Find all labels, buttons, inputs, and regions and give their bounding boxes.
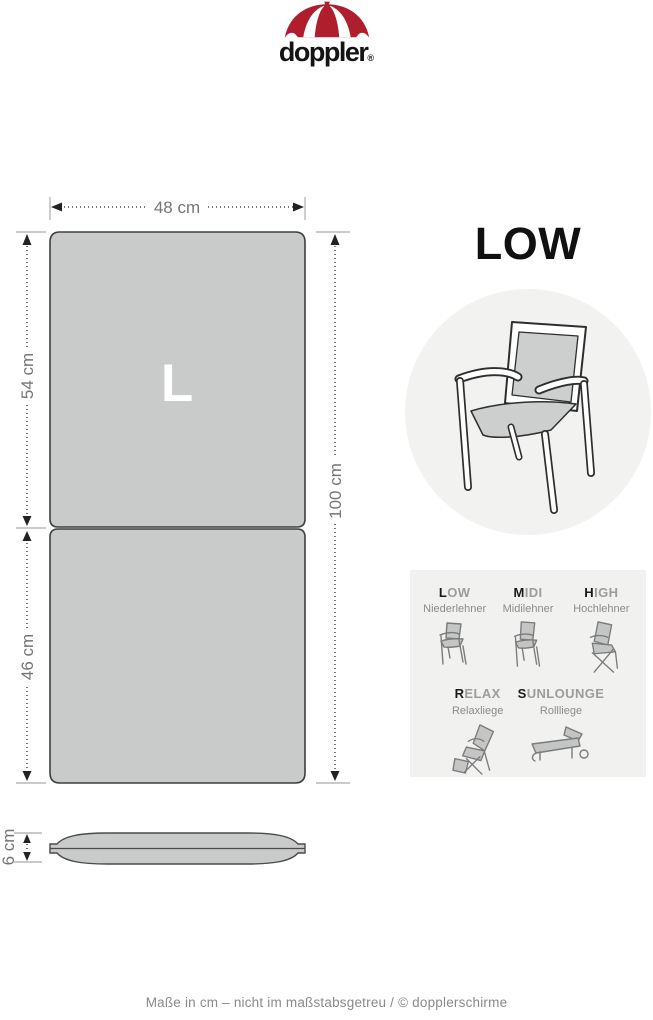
- legend-label-high: HIGH: [565, 586, 638, 600]
- legend-sublabel-sunlounge: Rollliege: [518, 705, 605, 717]
- brand-wordmark: doppler®: [279, 39, 374, 66]
- cushion-front-view: L: [50, 232, 305, 783]
- chair-high-mini-icon: [578, 620, 624, 674]
- chair-relax-mini-icon: [452, 722, 504, 776]
- doppler-logo: doppler®: [0, 0, 653, 66]
- umbrella-icon: [283, 0, 371, 42]
- legend-item-high: HIGH Hochlehner: [565, 586, 638, 679]
- legend-item-low: LOW Niederlehner: [418, 586, 491, 679]
- width-dimension-label: 48 cm: [154, 198, 200, 217]
- product-type-title: LOW: [405, 221, 651, 266]
- legend-item-midi: MIDI Midilehner: [491, 586, 564, 679]
- product-dimension-sheet: doppler®: [0, 0, 653, 1020]
- legend-sublabel-relax: Relaxliege: [452, 705, 504, 717]
- sunlounge-mini-icon: [528, 722, 594, 764]
- legend-label-relax: RELAX: [452, 687, 504, 701]
- legend-sublabel-low: Niederlehner: [418, 603, 491, 615]
- upper-height-dimension-label: 54 cm: [18, 353, 37, 399]
- legend-item-relax: RELAX Relaxliege: [452, 687, 504, 780]
- legend-sublabel-high: Hochlehner: [565, 603, 638, 615]
- size-letter: L: [161, 354, 193, 413]
- legend-label-low: LOW: [418, 586, 491, 600]
- legend-sublabel-midi: Midilehner: [491, 603, 564, 615]
- low-chair-icon: [405, 289, 651, 535]
- legend-row-1: LOW Niederlehner MIDI Midilehn: [410, 570, 646, 679]
- legend-row-2: RELAX Relaxliege SUNLOUNGE Rol: [410, 687, 646, 780]
- chair-type-circle: [405, 289, 651, 535]
- brand-name: doppler: [279, 37, 368, 67]
- legend-label-midi: MIDI: [491, 586, 564, 600]
- cushion-side-view: [50, 833, 305, 864]
- lower-height-dimension-label: 46 cm: [18, 634, 37, 680]
- cushion-lower-section: [50, 529, 305, 783]
- footer-note: Maße in cm – nicht im maßstabsgetreu / ©…: [0, 995, 653, 1010]
- registered-mark: ®: [367, 53, 374, 63]
- legend-item-sunlounge: SUNLOUNGE Rollliege: [518, 687, 605, 780]
- chair-low-mini-icon: [435, 620, 475, 668]
- chair-types-legend: LOW Niederlehner MIDI Midilehn: [410, 570, 646, 777]
- total-length-dimension-label: 100 cm: [326, 463, 345, 519]
- cushion-dimension-diagram: L 48 cm 54 cm 46 cm 100 cm 6 cm: [0, 190, 400, 890]
- legend-label-sunlounge: SUNLOUNGE: [518, 687, 605, 701]
- thickness-dimension-label: 6 cm: [0, 829, 18, 866]
- chair-midi-mini-icon: [508, 620, 548, 670]
